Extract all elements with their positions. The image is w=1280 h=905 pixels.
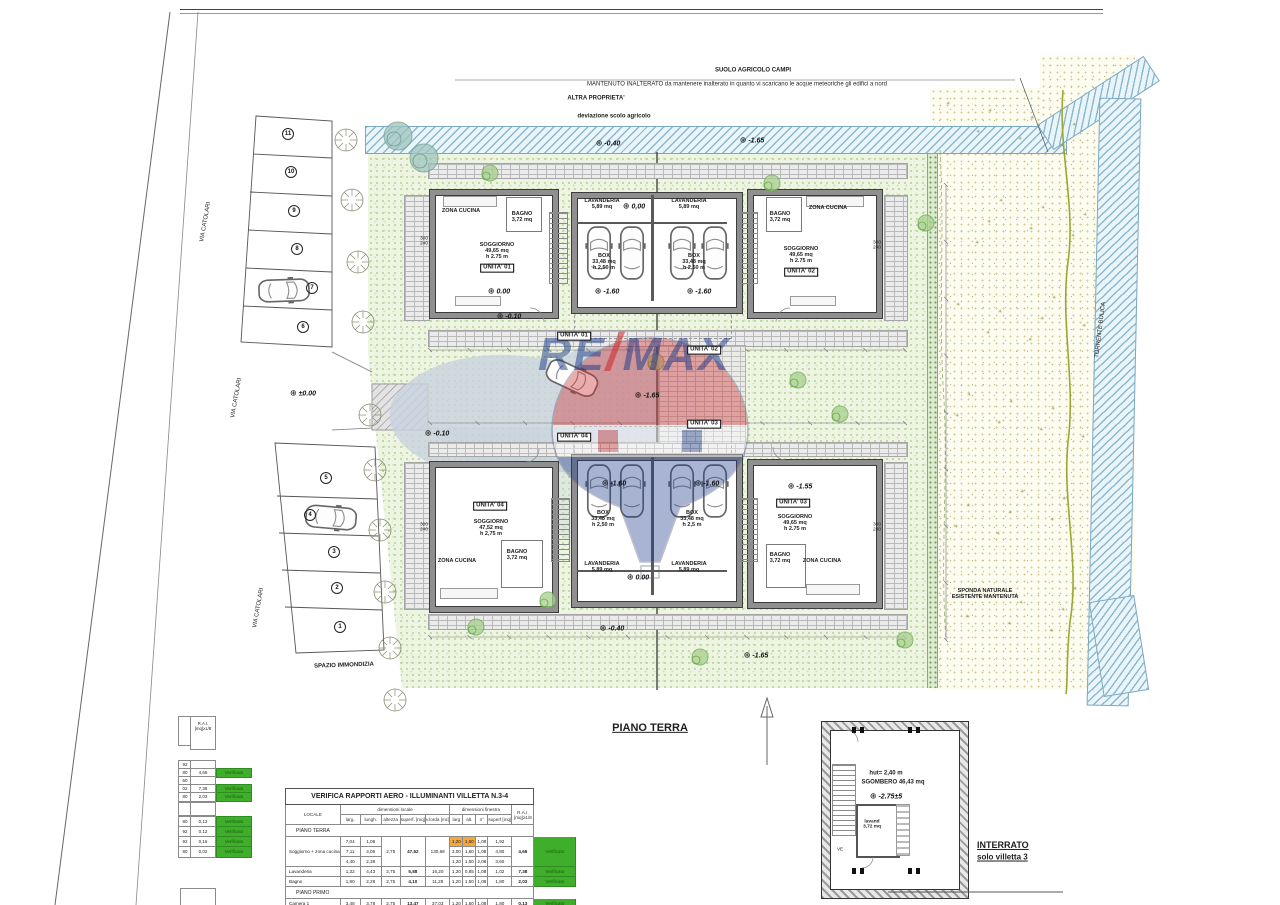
left-table-verdict: Verificato: [216, 846, 252, 858]
street-trees: [335, 129, 406, 711]
vegetation-mark: ✳: [976, 129, 980, 135]
vegetation-mark: ✳: [997, 420, 1001, 426]
vegetation-mark: ✳: [999, 198, 1003, 204]
car-garage: [668, 227, 695, 279]
vegetation-mark: ✳: [967, 392, 971, 398]
vegetation-mark: ✳: [965, 614, 969, 620]
vegetation-mark: ✳: [1019, 600, 1023, 606]
remax-slash: /: [606, 323, 623, 382]
vegetation-mark: ✳: [946, 101, 950, 107]
vegetation-mark: ✳: [1039, 427, 1043, 433]
bush-symbol: [692, 649, 708, 665]
vegetation-mark: ✳: [986, 330, 990, 336]
vegetation-mark: ✳: [1028, 337, 1032, 343]
vegetation-mark: ✳: [1060, 143, 1064, 149]
vegetation-mark: ✳: [1009, 399, 1013, 405]
vegetation-mark: ✳: [955, 413, 959, 419]
car-parking-north: [259, 276, 310, 304]
vegetation-mark: ✳: [1052, 295, 1056, 301]
bush-symbol: [410, 144, 438, 172]
site-plan-sheet: ✳✳✳✳✳✳✳✳✳✳✳✳✳✳✳✳✳✳✳✳✳✳✳✳✳✳✳✳✳✳✳✳✳✳✳✳✳✳✳✳…: [0, 0, 1280, 905]
vegetation-mark: ✳: [1049, 628, 1053, 634]
vegetation-mark: ✳: [1071, 233, 1075, 239]
verification-table-title: VERIFICA RAPPORTI AERO - ILLUMINANTI VIL…: [286, 789, 534, 805]
left-table-rai-value: 0,02: [190, 846, 216, 858]
interrato-window-marks: [852, 727, 920, 874]
bush-symbol: [832, 406, 848, 422]
vegetation-mark: ✳: [1062, 496, 1066, 502]
bush-symbol: [540, 592, 556, 608]
bush-symbol: [384, 122, 412, 150]
bush-symbol: [918, 215, 934, 231]
verification-table: VERIFICA RAPPORTI AERO - ILLUMINANTI VIL…: [285, 788, 576, 905]
bush-symbol: [897, 632, 913, 648]
bush-symbol: [482, 165, 498, 181]
vegetation-mark: ✳: [975, 240, 979, 246]
vegetation-mark: ✳: [1020, 489, 1024, 495]
vegetation-mark: ✳: [966, 503, 970, 509]
remax-re: RE: [538, 328, 606, 380]
vegetation-mark: ✳: [1041, 205, 1045, 211]
north-arrow: [761, 698, 773, 765]
vegetation-mark: ✳: [1030, 115, 1034, 121]
left-table-lower-box: [180, 888, 216, 905]
left-table-rai-value: [190, 802, 216, 816]
car-garage: [585, 227, 612, 279]
car-garage: [618, 227, 645, 279]
bush-symbol: [468, 619, 484, 635]
left-table-verdict: Verificato: [216, 792, 252, 802]
car-garage: [701, 227, 728, 279]
east-garden-vegetation: ✳✳✳✳✳✳✳✳✳✳✳✳✳✳✳✳✳✳✳✳✳✳✳✳✳✳✳✳✳✳✳✳✳✳✳✳✳✳✳✳…: [946, 101, 1087, 634]
bush-symbol: [790, 372, 806, 388]
vegetation-mark: ✳: [954, 524, 958, 530]
vegetation-mark: ✳: [1082, 323, 1086, 329]
vegetation-mark: ✳: [1073, 586, 1077, 592]
left-table-rai-header: R.A.I.[mq]≥1/8: [190, 716, 216, 750]
vegetation-mark: ✳: [1083, 212, 1087, 218]
remax-logo-watermark: RE/MAX: [538, 322, 731, 383]
vegetation-mark: ✳: [988, 108, 992, 114]
vegetation-mark: ✳: [1050, 517, 1054, 523]
vegetation-mark: ✳: [1018, 136, 1022, 142]
vegetation-mark: ✳: [998, 309, 1002, 315]
left-table-rai-value: 2,03: [190, 792, 216, 802]
vegetation-mark: ✳: [1040, 316, 1044, 322]
left-table-verdict: Verificato: [216, 768, 252, 778]
vegetation-mark: ✳: [996, 531, 1000, 537]
vegetation-mark: ✳: [1051, 406, 1055, 412]
vegetation-mark: ✳: [1008, 510, 1012, 516]
vegetation-mark: ✳: [987, 219, 991, 225]
bush-symbol: [764, 175, 780, 191]
vegetation-mark: ✳: [1007, 621, 1011, 627]
vegetation-mark: ✳: [956, 302, 960, 308]
remax-max: MAX: [623, 328, 731, 380]
vegetation-mark: ✳: [1061, 607, 1065, 613]
car-parking-south: [305, 502, 357, 533]
vegetation-mark: ✳: [977, 593, 981, 599]
vegetation-mark: ✳: [1072, 122, 1076, 128]
vegetation-mark: ✳: [1081, 434, 1085, 440]
vegetation-mark: ✳: [1029, 226, 1033, 232]
